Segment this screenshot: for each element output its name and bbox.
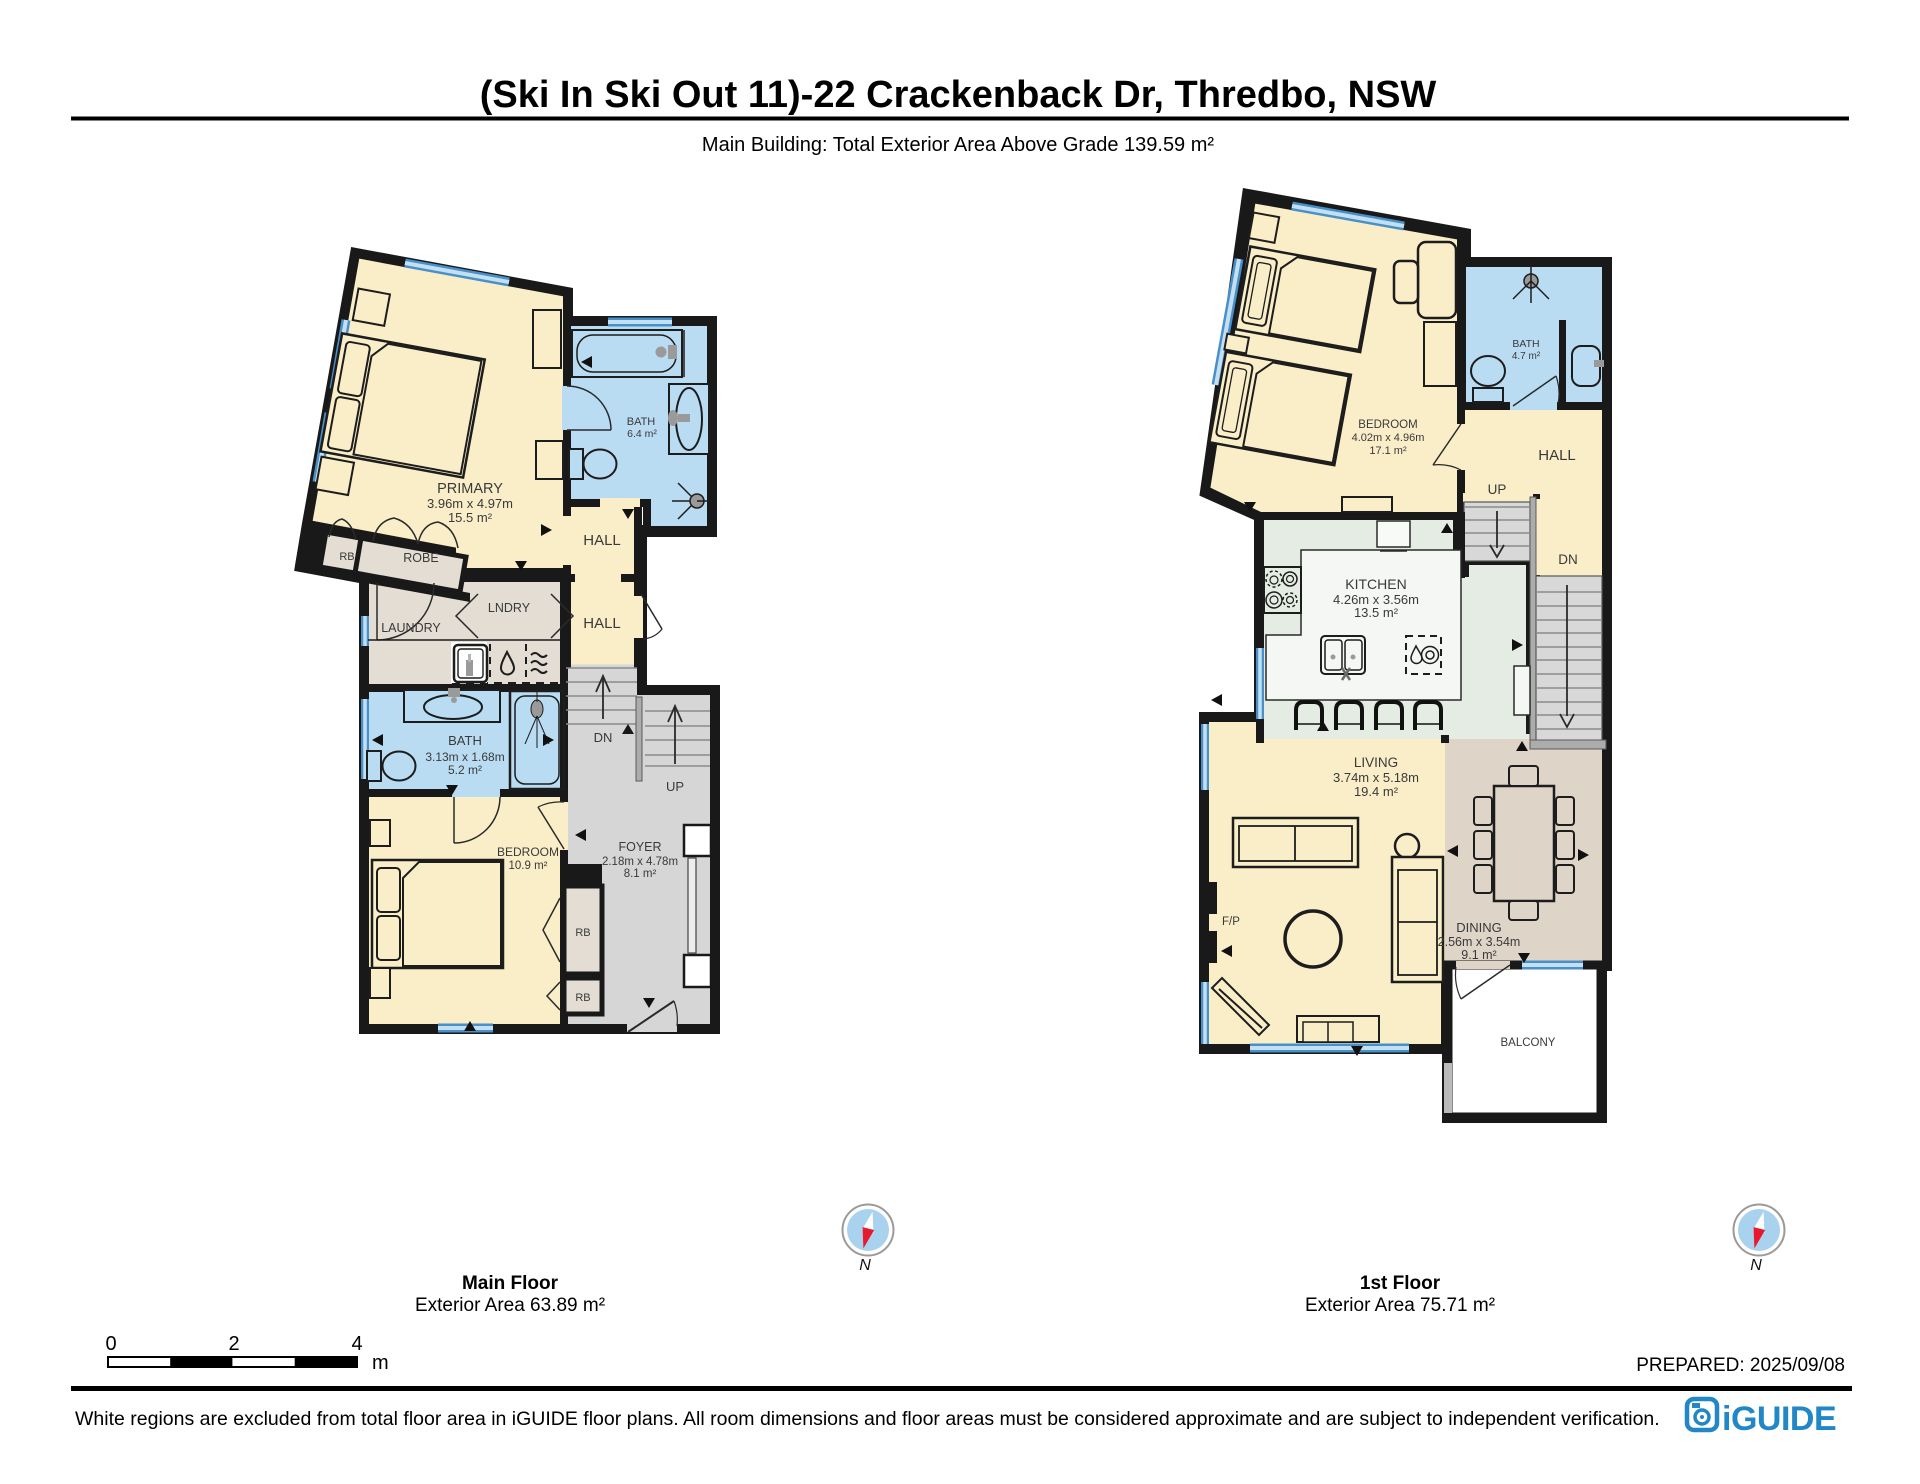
svg-text:BEDROOM: BEDROOM xyxy=(497,845,559,859)
svg-text:UP: UP xyxy=(666,779,684,794)
svg-text:17.1 m²: 17.1 m² xyxy=(1369,445,1407,457)
svg-text:2.56m x 3.54m: 2.56m x 3.54m xyxy=(1438,935,1521,949)
svg-text:4: 4 xyxy=(351,1333,362,1355)
svg-text:HALL: HALL xyxy=(583,615,621,632)
svg-text:3.96m x 4.97m: 3.96m x 4.97m xyxy=(427,496,513,511)
svg-text:iGUIDE: iGUIDE xyxy=(1722,1400,1836,1438)
svg-text:White regions are excluded fro: White regions are excluded from total fl… xyxy=(75,1408,1660,1430)
svg-text:(Ski In Ski Out 11)-22 Cracken: (Ski In Ski Out 11)-22 Crackenback Dr, T… xyxy=(480,74,1437,116)
svg-text:9.1 m²: 9.1 m² xyxy=(1461,948,1496,962)
svg-text:6.4 m²: 6.4 m² xyxy=(627,428,657,440)
svg-text:DN: DN xyxy=(1558,552,1578,567)
svg-text:3.13m x 1.68m: 3.13m x 1.68m xyxy=(425,750,504,764)
svg-text:BATH: BATH xyxy=(1512,338,1539,350)
svg-text:4.02m x 4.96m: 4.02m x 4.96m xyxy=(1352,432,1425,444)
svg-text:2: 2 xyxy=(228,1333,239,1355)
svg-text:3.74m x 5.18m: 3.74m x 5.18m xyxy=(1333,770,1419,785)
svg-text:RB: RB xyxy=(339,551,354,563)
svg-text:4.7 m²: 4.7 m² xyxy=(1512,351,1541,362)
svg-text:10.9 m²: 10.9 m² xyxy=(509,860,548,872)
svg-text:RB: RB xyxy=(575,927,590,939)
svg-text:FOYER: FOYER xyxy=(618,840,661,854)
svg-text:F/P: F/P xyxy=(1222,916,1240,928)
svg-text:ROBE: ROBE xyxy=(403,551,438,565)
svg-text:0: 0 xyxy=(105,1333,116,1355)
svg-text:BALCONY: BALCONY xyxy=(1501,1037,1556,1049)
svg-text:13.5 m²: 13.5 m² xyxy=(1354,605,1399,620)
svg-text:LIVING: LIVING xyxy=(1354,755,1398,770)
svg-text:N: N xyxy=(859,1257,871,1274)
svg-text:5.2 m²: 5.2 m² xyxy=(448,763,482,777)
svg-text:DINING: DINING xyxy=(1456,920,1502,935)
svg-text:UP: UP xyxy=(1488,482,1507,497)
svg-text:RB: RB xyxy=(575,992,590,1004)
svg-text:KITCHEN: KITCHEN xyxy=(1345,576,1406,592)
svg-text:Exterior Area 75.71 m²: Exterior Area 75.71 m² xyxy=(1305,1295,1495,1316)
svg-text:LNDRY: LNDRY xyxy=(488,601,531,615)
svg-text:15.5 m²: 15.5 m² xyxy=(448,510,493,525)
svg-text:DN: DN xyxy=(594,730,613,745)
svg-text:HALL: HALL xyxy=(1538,447,1576,464)
svg-text:8.1 m²: 8.1 m² xyxy=(624,868,657,880)
svg-text:BATH: BATH xyxy=(448,733,482,748)
svg-text:PREPARED: 2025/09/08: PREPARED: 2025/09/08 xyxy=(1636,1355,1845,1376)
svg-text:Main Floor: Main Floor xyxy=(462,1273,559,1294)
svg-text:BATH: BATH xyxy=(627,416,656,428)
svg-text:2.18m x 4.78m: 2.18m x 4.78m xyxy=(602,856,678,868)
svg-text:N: N xyxy=(1750,1257,1762,1274)
svg-text:19.4 m²: 19.4 m² xyxy=(1354,784,1399,799)
svg-text:BEDROOM: BEDROOM xyxy=(1358,419,1417,431)
svg-text:Main Building: Total Exterior: Main Building: Total Exterior Area Above… xyxy=(702,134,1214,156)
svg-text:1st Floor: 1st Floor xyxy=(1360,1273,1441,1294)
svg-text:PRIMARY: PRIMARY xyxy=(437,481,503,497)
svg-text:LAUNDRY: LAUNDRY xyxy=(381,621,441,635)
svg-text:m: m xyxy=(372,1352,389,1374)
svg-text:Exterior Area 63.89 m²: Exterior Area 63.89 m² xyxy=(415,1295,605,1316)
svg-text:HALL: HALL xyxy=(583,532,621,549)
